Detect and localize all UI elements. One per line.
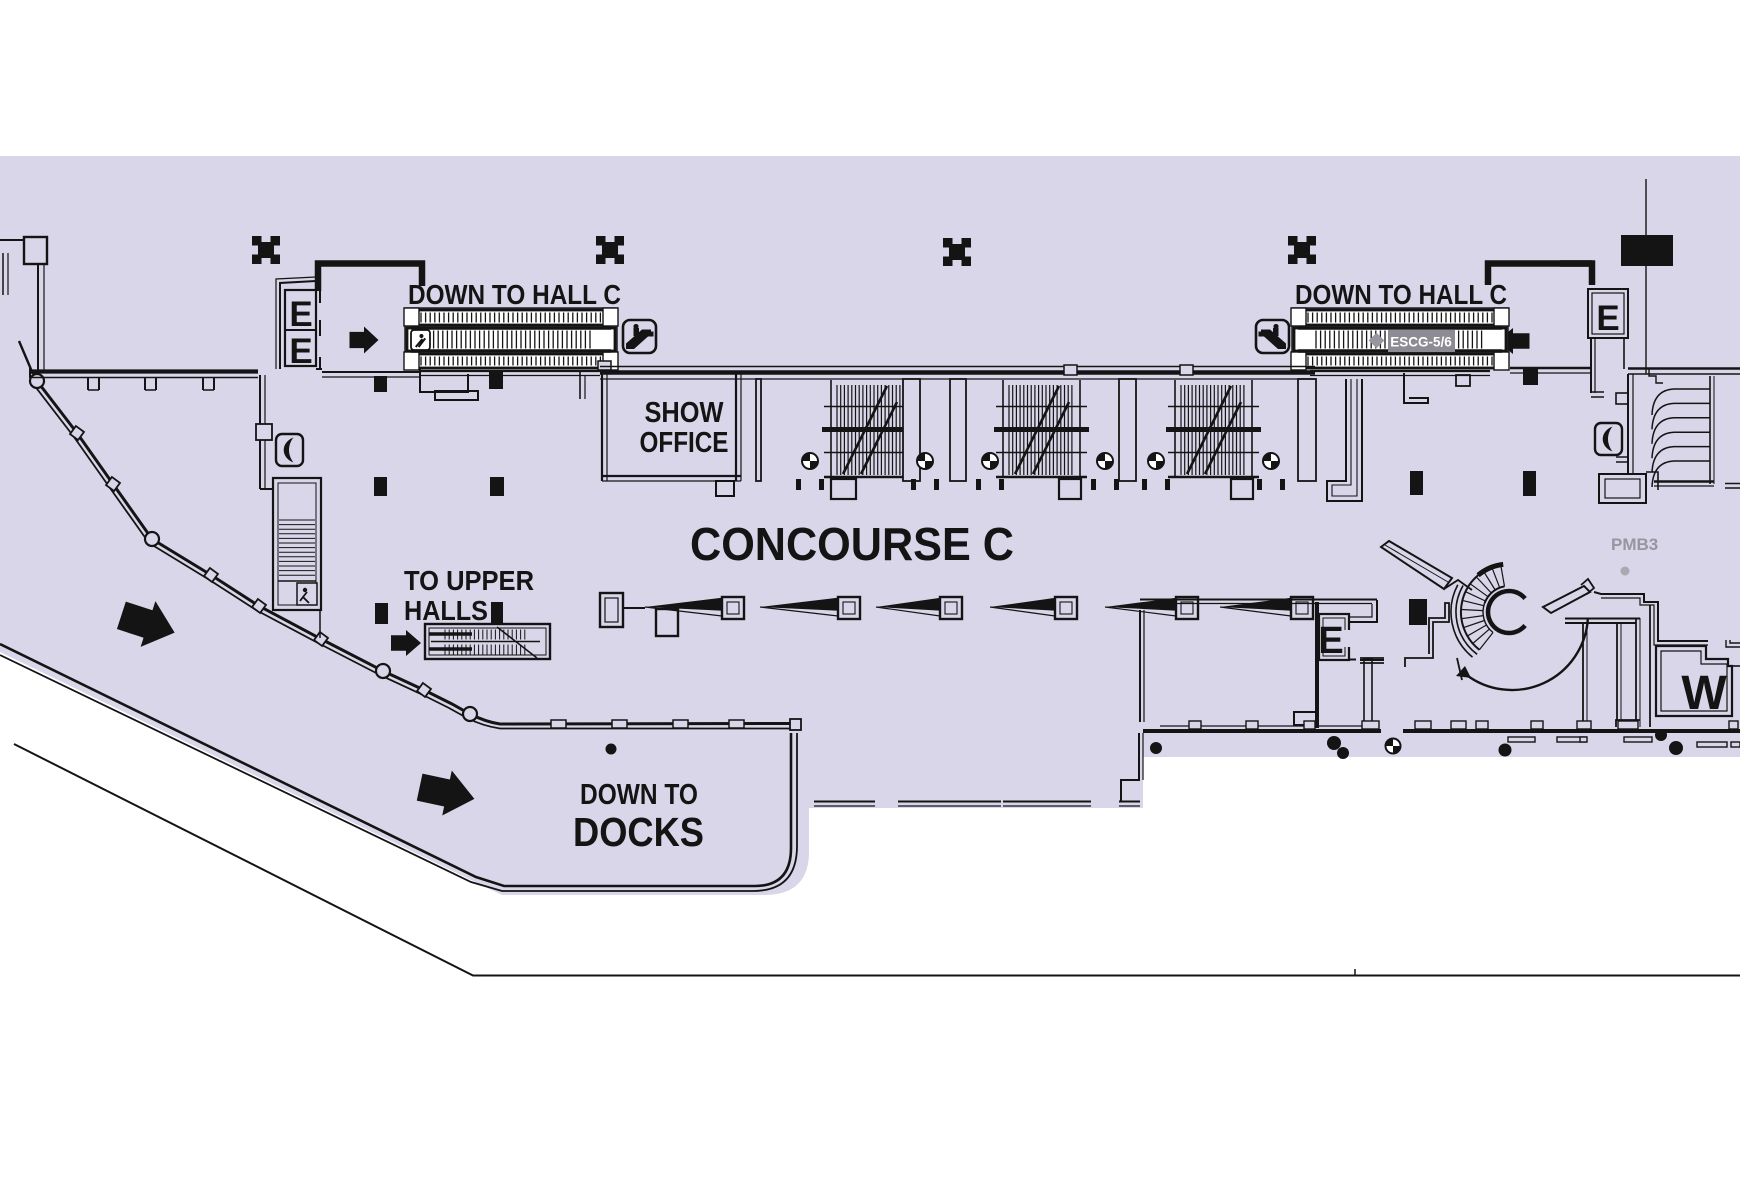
svg-text:CONCOURSE C: CONCOURSE C: [690, 518, 1014, 570]
svg-text:HALLS: HALLS: [404, 595, 488, 626]
svg-text:DOWN TO HALL C: DOWN TO HALL C: [408, 279, 621, 310]
svg-text:DOWN TO HALL C: DOWN TO HALL C: [1295, 279, 1507, 310]
svg-text:DOCKS: DOCKS: [573, 809, 704, 855]
svg-text:W: W: [1681, 667, 1727, 720]
svg-text:OFFICE: OFFICE: [640, 427, 729, 459]
svg-text:DOWN TO: DOWN TO: [580, 779, 698, 811]
svg-text:TO UPPER: TO UPPER: [404, 565, 534, 596]
svg-text:E: E: [289, 295, 312, 334]
svg-text:E: E: [1318, 620, 1343, 662]
svg-text:E: E: [1596, 299, 1619, 338]
svg-text:PMB3: PMB3: [1611, 535, 1658, 554]
svg-text:SHOW: SHOW: [645, 397, 725, 429]
svg-text:ESCG-5/6: ESCG-5/6: [1390, 335, 1452, 350]
svg-text:E: E: [289, 332, 312, 371]
